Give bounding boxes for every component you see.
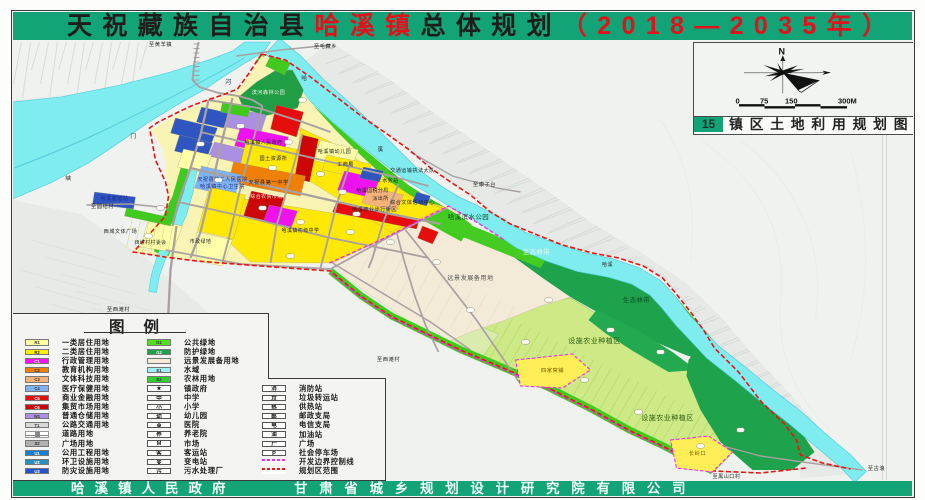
svg-text:哈溪镇初级中学: 哈溪镇初级中学 (281, 227, 319, 234)
svg-text:滨河森林公园: 滨河森林公园 (251, 89, 285, 96)
svg-text:设施农业种植区: 设施农业种植区 (568, 336, 621, 345)
svg-text:派出所: 派出所 (372, 195, 388, 202)
svg-text:哈溪: 哈溪 (601, 261, 612, 268)
svg-text:哈: 哈 (301, 74, 307, 82)
svg-text:远景发展备用地: 远景发展备用地 (447, 274, 493, 282)
svg-text:生态林带: 生态林带 (622, 295, 649, 304)
svg-text:哈溪镇中心卫生院: 哈溪镇中心卫生院 (200, 183, 245, 190)
svg-text:交通运输执法大队: 交通运输执法大队 (390, 167, 435, 174)
svg-text:水务站: 水务站 (382, 177, 398, 184)
svg-text:哈溪客运站: 哈溪客运站 (100, 195, 128, 202)
svg-text:工商局: 工商局 (337, 161, 354, 168)
svg-text:至康子台: 至康子台 (472, 180, 495, 188)
svg-text:河: 河 (225, 78, 232, 86)
svg-text:至古浪: 至古浪 (867, 464, 885, 472)
svg-text:N: N (779, 47, 786, 57)
svg-text:综合农贸市场: 综合农贸市场 (250, 193, 282, 200)
svg-text:300M: 300M (838, 97, 857, 106)
svg-text:至毛藏乡: 至毛藏乡 (313, 42, 336, 50)
svg-text:至圆结村: 至圆结村 (90, 202, 113, 210)
svg-text:哈溪镇幼儿园: 哈溪镇幼儿园 (317, 148, 351, 155)
svg-text:设施农业种植区: 设施农业种植区 (641, 413, 694, 422)
svg-text:天祝县第一中学: 天祝县第一中学 (248, 178, 289, 186)
svg-text:生态林带: 生态林带 (522, 247, 549, 256)
svg-text:长岭口: 长岭口 (688, 449, 705, 457)
svg-text:市政绿地: 市政绿地 (189, 238, 211, 245)
svg-text:至西滩村: 至西滩村 (376, 355, 399, 363)
svg-text:至西滩村: 至西滩村 (106, 305, 129, 313)
svg-text:哈溪镇人民政府: 哈溪镇人民政府 (244, 139, 282, 146)
svg-text:溪: 溪 (377, 145, 383, 153)
svg-text:至黑山口村: 至黑山口村 (712, 473, 740, 480)
svg-text:国土资源所: 国土资源所 (259, 155, 287, 162)
svg-text:四家窝铺: 四家窝铺 (540, 366, 563, 374)
svg-text:峡: 峡 (65, 174, 71, 182)
svg-text:哈溪滨水公园: 哈溪滨水公园 (447, 212, 488, 221)
svg-text:综合文体活动中心: 综合文体活动中心 (390, 199, 435, 206)
svg-text:西城文体广场: 西城文体广场 (103, 228, 137, 235)
svg-text:至黄羊镇: 至黄羊镇 (148, 40, 171, 48)
svg-text:哈溪国税分局: 哈溪国税分局 (356, 187, 388, 194)
svg-text:门: 门 (130, 132, 136, 140)
